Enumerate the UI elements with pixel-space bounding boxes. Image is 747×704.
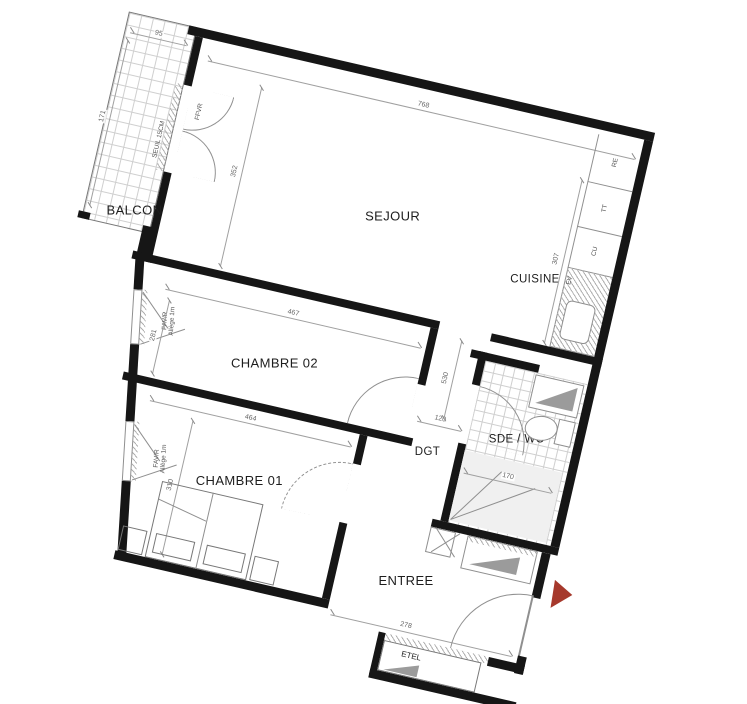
room-label-sejour: SEJOUR [365, 209, 420, 224]
wall-top [187, 25, 655, 141]
floor-plan-canvas: SEUIL 15CM 95 171 FFVR SEJOUR CUISINE 76… [0, 0, 747, 704]
room-label-chambre01: CHAMBRE 01 [196, 473, 283, 488]
balcony-door-arc [173, 131, 225, 183]
balcony-door-arc [183, 88, 235, 140]
wall-chambre01-right [322, 522, 347, 600]
room-label-dgt: DGT [415, 446, 440, 458]
room-label-cuisine: CUISINE [510, 274, 559, 286]
room-label-entree: ENTREE [378, 573, 433, 588]
apartment-floor-plan: SEUIL 15CM 95 171 FFVR SEJOUR CUISINE 76… [0, 2, 712, 704]
chambre02-door-arc [347, 365, 419, 437]
dim-chambre02-depth: 281 [149, 328, 159, 343]
room-label-chambre02: CHAMBRE 02 [231, 356, 318, 371]
dim-line [208, 60, 635, 160]
wall-corridor-left [418, 327, 439, 385]
dim-line [165, 289, 421, 349]
chambre01-door-arc [281, 450, 353, 522]
dim-cuisine-length: 307 [551, 251, 561, 266]
nightstand [118, 525, 148, 555]
wall-chambre01-right [353, 434, 368, 465]
wall-left-exterior: FAV/RAllège 1m FAV/RAllège 1m [117, 259, 144, 554]
room-label-balcon: BALCON [107, 202, 163, 217]
window-label: FAV/RAllège 1m [152, 444, 168, 474]
wall-segment [77, 210, 90, 220]
dim-sejour-depth: 352 [230, 164, 240, 179]
toilet-bowl [524, 416, 557, 442]
dim-entree-width: 278 [398, 621, 413, 631]
entrance-marker-icon [539, 580, 572, 613]
dim-dgt-length: 530 [441, 371, 451, 386]
nightstand [249, 556, 279, 586]
wall-segment [134, 259, 145, 289]
